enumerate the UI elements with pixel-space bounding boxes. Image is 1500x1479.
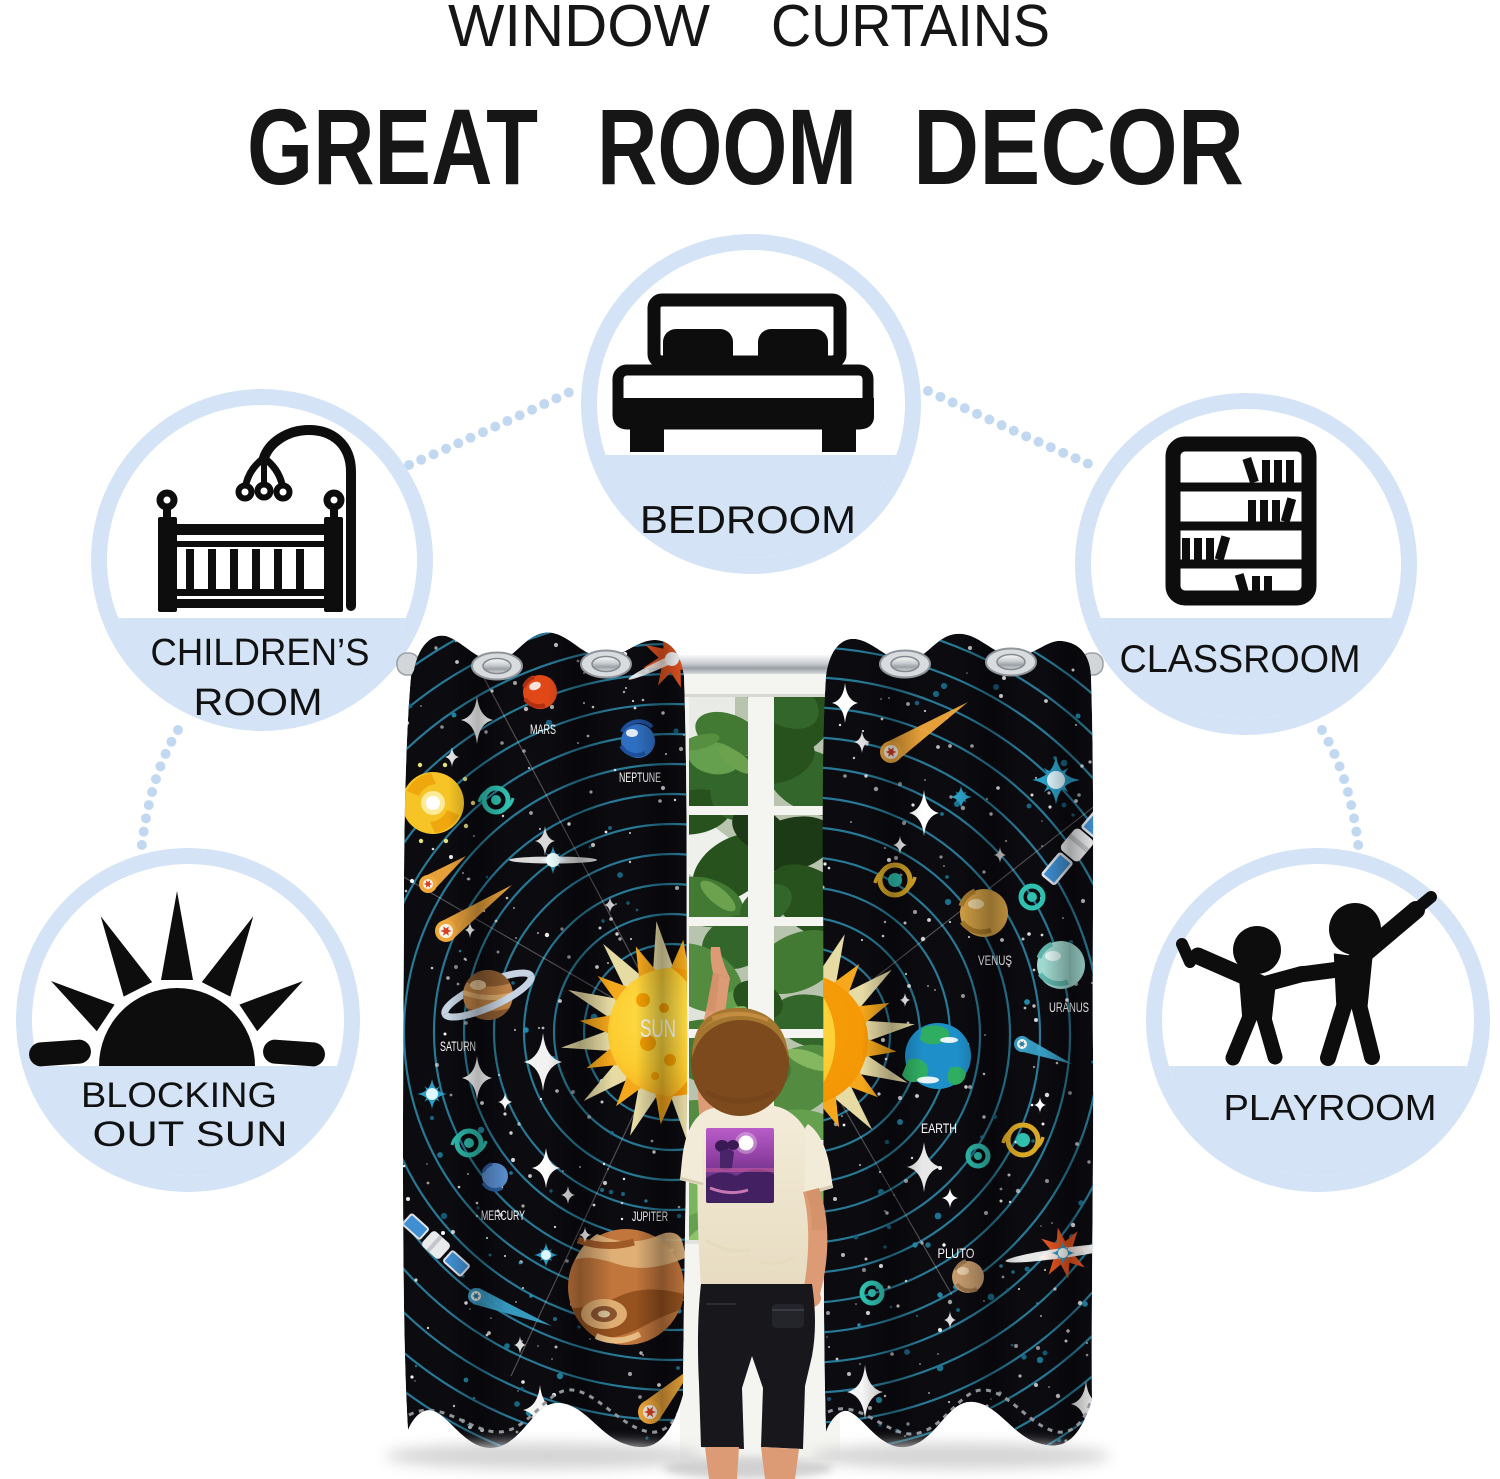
svg-text:ROOM: ROOM <box>597 86 857 207</box>
svg-text:CLASSROOM: CLASSROOM <box>1120 638 1361 681</box>
svg-text:CHILDREN’S: CHILDREN’S <box>151 632 370 674</box>
svg-text:GREAT: GREAT <box>247 86 538 207</box>
svg-text:BEDROOM: BEDROOM <box>640 499 856 542</box>
svg-text:PLAYROOM: PLAYROOM <box>1224 1087 1437 1128</box>
svg-text:ROOM: ROOM <box>194 682 323 724</box>
svg-text:DECOR: DECOR <box>913 86 1244 207</box>
svg-text:CURTAINS: CURTAINS <box>771 0 1050 59</box>
svg-text:WINDOW: WINDOW <box>448 0 710 59</box>
svg-text:OUT SUN: OUT SUN <box>93 1115 288 1154</box>
svg-text:EARTH: EARTH <box>921 1120 957 1136</box>
svg-text:BLOCKING: BLOCKING <box>81 1076 277 1115</box>
